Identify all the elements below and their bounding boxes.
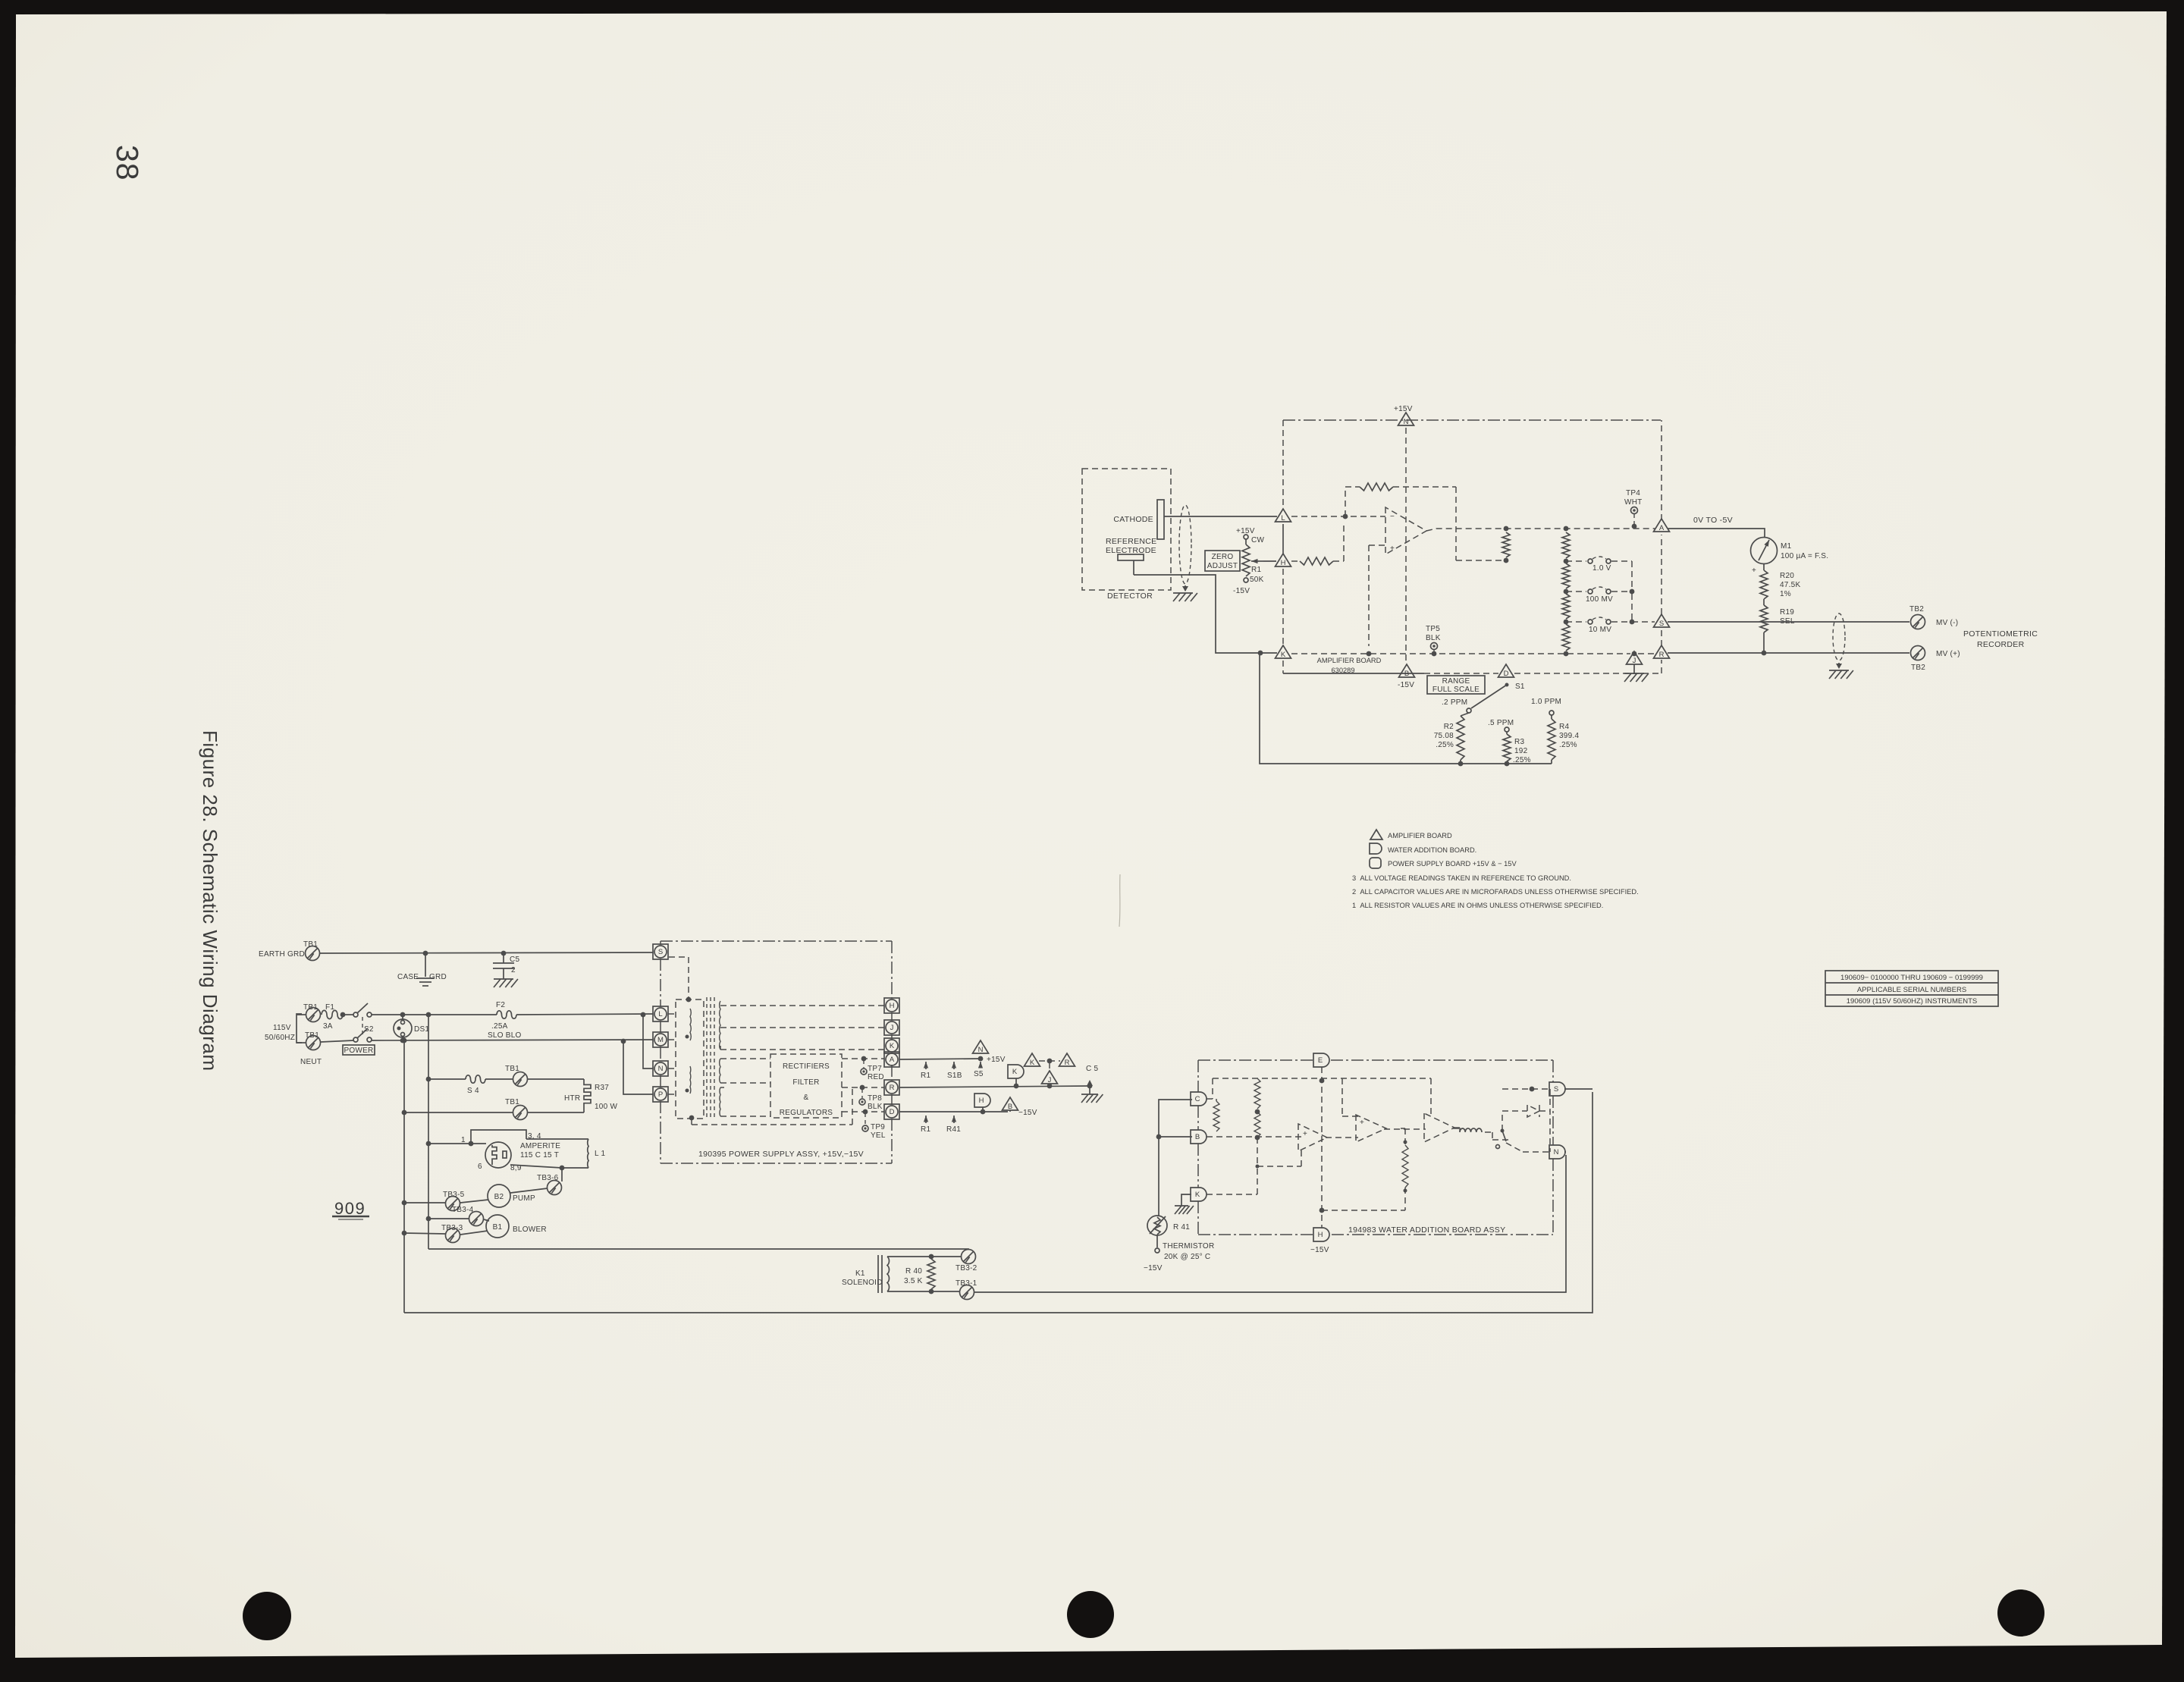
- svg-text:−: −: [1390, 513, 1395, 521]
- svg-text:R19: R19: [1780, 608, 1794, 617]
- svg-text:−15V: −15V: [1144, 1264, 1163, 1272]
- svg-text:GRD: GRD: [429, 973, 447, 981]
- svg-text:100 MV: 100 MV: [1586, 595, 1613, 604]
- svg-text:TP5: TP5: [1426, 625, 1440, 633]
- svg-text:190395 POWER SUPPLY ASSY, +15V: 190395 POWER SUPPLY ASSY, +15V,−15V: [698, 1150, 864, 1159]
- svg-text:BLK: BLK: [868, 1103, 883, 1111]
- svg-text:S2: S2: [364, 1025, 374, 1034]
- svg-text:B1: B1: [493, 1223, 503, 1232]
- svg-text:SLO BLO: SLO BLO: [488, 1031, 522, 1040]
- svg-text:+: +: [1303, 1130, 1307, 1138]
- svg-text:E: E: [1318, 1056, 1323, 1065]
- svg-text:115 C 15 T: 115 C 15 T: [520, 1151, 559, 1160]
- svg-text:R1: R1: [1251, 566, 1261, 574]
- svg-text:J: J: [890, 1024, 894, 1032]
- svg-text:FULL SCALE: FULL SCALE: [1432, 686, 1480, 694]
- svg-text:1: 1: [461, 1136, 466, 1144]
- svg-text:NEUT: NEUT: [300, 1058, 322, 1066]
- svg-text:100 W: 100 W: [595, 1103, 617, 1111]
- svg-text:REGULATORS: REGULATORS: [780, 1109, 833, 1117]
- svg-text:B: B: [1008, 1103, 1012, 1111]
- svg-text:S 4: S 4: [467, 1087, 479, 1095]
- svg-text:TB3-5: TB3-5: [443, 1191, 465, 1199]
- svg-text:50K: 50K: [1250, 576, 1264, 584]
- svg-text:TB2: TB2: [1909, 605, 1924, 613]
- svg-text:AMPLIFIER BOARD: AMPLIFIER BOARD: [1317, 657, 1382, 664]
- svg-text:B: B: [1195, 1133, 1200, 1141]
- svg-text:RECTIFIERS: RECTIFIERS: [783, 1062, 830, 1071]
- svg-text:DETECTOR: DETECTOR: [1107, 592, 1153, 601]
- svg-text:R20: R20: [1780, 572, 1794, 580]
- svg-text:190609− 0100000 THRU 190609 −: 190609− 0100000 THRU 190609 − 0199999: [1840, 974, 1983, 982]
- svg-text:H: H: [890, 1002, 895, 1010]
- svg-text:R41: R41: [946, 1125, 961, 1134]
- svg-text:194983 WATER ADDITION BOARD AS: 194983 WATER ADDITION BOARD ASSY: [1348, 1225, 1505, 1235]
- svg-text:P: P: [658, 1090, 663, 1099]
- svg-text:190609 (115V 50/60HZ) INSTR: 190609 (115V 50/60HZ) INSTRUMENTS: [1847, 997, 1977, 1006]
- svg-text:R1: R1: [921, 1072, 930, 1080]
- svg-text:3A: 3A: [323, 1022, 333, 1031]
- svg-text:+: +: [1390, 544, 1395, 553]
- svg-text:+: +: [1752, 566, 1756, 575]
- svg-text:2: 2: [511, 966, 516, 974]
- svg-text:K: K: [1281, 651, 1286, 659]
- svg-text:20K @ 25° C: 20K @ 25° C: [1164, 1253, 1210, 1261]
- svg-text:.25%: .25%: [1436, 741, 1454, 749]
- svg-text:R4: R4: [1559, 723, 1569, 731]
- svg-text:38: 38: [110, 145, 145, 181]
- svg-text:MV (-): MV (-): [1936, 619, 1958, 627]
- svg-text:3 ALL VOLTAGE READINGS TAKEN: 3 ALL VOLTAGE READINGS TAKEN IN REFERENC…: [1352, 874, 1571, 882]
- svg-text:H: H: [1318, 1231, 1323, 1239]
- svg-text:J: J: [1633, 657, 1636, 665]
- svg-text:C 5: C 5: [1086, 1065, 1099, 1073]
- svg-text:R: R: [1065, 1059, 1070, 1067]
- svg-text:L 1: L 1: [595, 1150, 605, 1158]
- svg-text:H: H: [1281, 559, 1286, 567]
- svg-text:CASE: CASE: [397, 973, 419, 981]
- svg-text:+: +: [1360, 1119, 1364, 1127]
- svg-text:630289: 630289: [1331, 667, 1354, 674]
- svg-text:TP9: TP9: [871, 1123, 885, 1131]
- svg-text:B: B: [1404, 670, 1409, 678]
- svg-text:TB2: TB2: [1911, 664, 1925, 672]
- svg-text:R 41: R 41: [1173, 1223, 1190, 1232]
- svg-text:S: S: [1554, 1085, 1558, 1094]
- svg-text:0V TO -5V: 0V TO -5V: [1693, 516, 1733, 525]
- svg-text:FILTER: FILTER: [792, 1078, 819, 1087]
- svg-text:399.4: 399.4: [1559, 732, 1579, 740]
- svg-text:H: H: [979, 1097, 984, 1105]
- svg-text:WATER ADDITION BOARD.: WATER ADDITION BOARD.: [1388, 846, 1476, 854]
- svg-text:1 ALL RESISTOR VALUES ARE IN: 1 ALL RESISTOR VALUES ARE IN OHMS UNLESS…: [1352, 902, 1603, 909]
- svg-text:TP7: TP7: [868, 1065, 882, 1073]
- svg-text:75.08: 75.08: [1434, 732, 1454, 740]
- svg-text:.25%: .25%: [1559, 741, 1577, 749]
- svg-text:AMPERITE: AMPERITE: [520, 1142, 560, 1150]
- svg-text:B2: B2: [494, 1193, 504, 1201]
- svg-text:A: A: [1659, 524, 1665, 532]
- svg-text:192: 192: [1514, 747, 1528, 755]
- svg-text:DS1: DS1: [414, 1025, 429, 1034]
- svg-text:R2: R2: [1444, 723, 1454, 731]
- svg-text:R: R: [890, 1084, 895, 1092]
- svg-text:+15V: +15V: [987, 1056, 1006, 1064]
- svg-text:TB3-4: TB3-4: [452, 1206, 474, 1214]
- svg-text:R37: R37: [595, 1084, 609, 1092]
- svg-text:C5: C5: [510, 956, 519, 964]
- svg-text:S: S: [1659, 620, 1664, 628]
- svg-text:.2 PPM: .2 PPM: [1442, 698, 1467, 707]
- svg-text:100 µA = F.S.: 100 µA = F.S.: [1781, 552, 1828, 560]
- svg-text:APPLICABLE SERIAL NUMBERS: APPLICABLE SERIAL NUMBERS: [1857, 986, 1966, 994]
- svg-text:HTR: HTR: [564, 1094, 580, 1103]
- svg-text:K: K: [1195, 1191, 1200, 1199]
- svg-text:ZERO: ZERO: [1212, 553, 1234, 561]
- svg-text:+15V: +15V: [1394, 405, 1413, 413]
- svg-text:S: S: [658, 948, 663, 956]
- svg-text:S5: S5: [974, 1070, 984, 1078]
- svg-text:YEL: YEL: [871, 1131, 886, 1140]
- svg-text:47.5K: 47.5K: [1780, 581, 1800, 589]
- svg-text:CW: CW: [1251, 536, 1264, 544]
- svg-text:2 ALL CAPACITOR VALUES ARE IN: 2 ALL CAPACITOR VALUES ARE IN MICROFARAD…: [1352, 888, 1639, 896]
- svg-text:115V: 115V: [273, 1024, 291, 1032]
- svg-text:POTENTIOMETRIC: POTENTIOMETRIC: [1963, 629, 2038, 639]
- svg-text:.5 PPM: .5 PPM: [1488, 719, 1514, 727]
- svg-text:BLK: BLK: [1426, 634, 1441, 642]
- svg-text:R 40: R 40: [905, 1267, 922, 1276]
- svg-text:Figure 28. Schematic Wiring D: Figure 28. Schematic Wiring Diagram: [199, 730, 221, 1072]
- svg-text:AMPLIFIER BOARD: AMPLIFIER BOARD: [1388, 832, 1452, 839]
- svg-text:6: 6: [478, 1163, 482, 1171]
- svg-text:REFERENCE: REFERENCE: [1106, 537, 1156, 546]
- svg-text:D: D: [1504, 670, 1509, 678]
- svg-text:RANGE: RANGE: [1442, 677, 1470, 686]
- svg-text:J: J: [1048, 1076, 1052, 1084]
- svg-text:−15V: −15V: [1018, 1109, 1037, 1117]
- svg-text:10 MV: 10 MV: [1589, 626, 1611, 634]
- svg-text:N: N: [1554, 1148, 1559, 1156]
- svg-text:THERMISTOR: THERMISTOR: [1163, 1242, 1214, 1251]
- svg-text:POWER SUPPLY BOARD +15V & − 15: POWER SUPPLY BOARD +15V & − 15V: [1388, 860, 1517, 868]
- svg-text:N: N: [658, 1065, 664, 1073]
- svg-text:1.0 PPM: 1.0 PPM: [1531, 698, 1561, 706]
- svg-text:PUMP: PUMP: [513, 1194, 535, 1203]
- svg-text:ADJUST: ADJUST: [1207, 562, 1238, 570]
- svg-text:N: N: [1404, 418, 1409, 426]
- svg-text:50/60HZ: 50/60HZ: [265, 1034, 295, 1042]
- svg-text:RECORDER: RECORDER: [1977, 640, 2025, 649]
- svg-text:K: K: [1012, 1068, 1018, 1076]
- svg-text:TB3-1: TB3-1: [955, 1279, 977, 1288]
- svg-text:BLOWER: BLOWER: [513, 1225, 547, 1234]
- svg-text:N: N: [978, 1046, 984, 1054]
- svg-text:TP8: TP8: [868, 1094, 882, 1103]
- svg-text:-15V: -15V: [1233, 587, 1250, 595]
- svg-text:K: K: [890, 1042, 895, 1050]
- svg-text:S1: S1: [1515, 683, 1525, 691]
- svg-text:K: K: [1030, 1059, 1035, 1067]
- svg-text:909: 909: [334, 1199, 366, 1218]
- svg-text:1%: 1%: [1780, 590, 1791, 598]
- svg-text:1.0 V: 1.0 V: [1592, 564, 1611, 573]
- svg-text:POWER: POWER: [344, 1047, 373, 1055]
- svg-text:−15V: −15V: [1310, 1246, 1329, 1254]
- svg-text:F2: F2: [496, 1001, 505, 1009]
- svg-text:TB3-2: TB3-2: [955, 1264, 977, 1272]
- svg-text:.25A: .25A: [491, 1022, 508, 1031]
- svg-text:EARTH GRD: EARTH GRD: [259, 950, 305, 959]
- svg-text:L: L: [658, 1010, 662, 1018]
- svg-text:K1: K1: [855, 1269, 865, 1278]
- svg-text:R3: R3: [1514, 738, 1524, 746]
- svg-text:-15V: -15V: [1398, 681, 1414, 689]
- svg-text:WHT: WHT: [1624, 498, 1643, 507]
- svg-text:D: D: [890, 1108, 895, 1116]
- svg-text:&: &: [804, 1094, 809, 1102]
- svg-text:C: C: [1195, 1095, 1200, 1103]
- svg-text:3.5 K: 3.5 K: [904, 1277, 923, 1285]
- svg-text:S1B: S1B: [947, 1072, 962, 1080]
- svg-text:TP4: TP4: [1626, 489, 1640, 497]
- svg-text:CATHODE: CATHODE: [1113, 515, 1153, 524]
- svg-text:R1: R1: [921, 1125, 930, 1134]
- svg-text:RED: RED: [868, 1073, 884, 1081]
- svg-text:M1: M1: [1781, 542, 1792, 551]
- svg-text:MV (+): MV (+): [1936, 650, 1960, 658]
- svg-text:R: R: [1659, 651, 1665, 659]
- svg-text:L: L: [1281, 514, 1285, 522]
- svg-text:A: A: [890, 1056, 895, 1064]
- svg-text:SOLENOID: SOLENOID: [842, 1279, 883, 1287]
- svg-text:M: M: [657, 1036, 664, 1044]
